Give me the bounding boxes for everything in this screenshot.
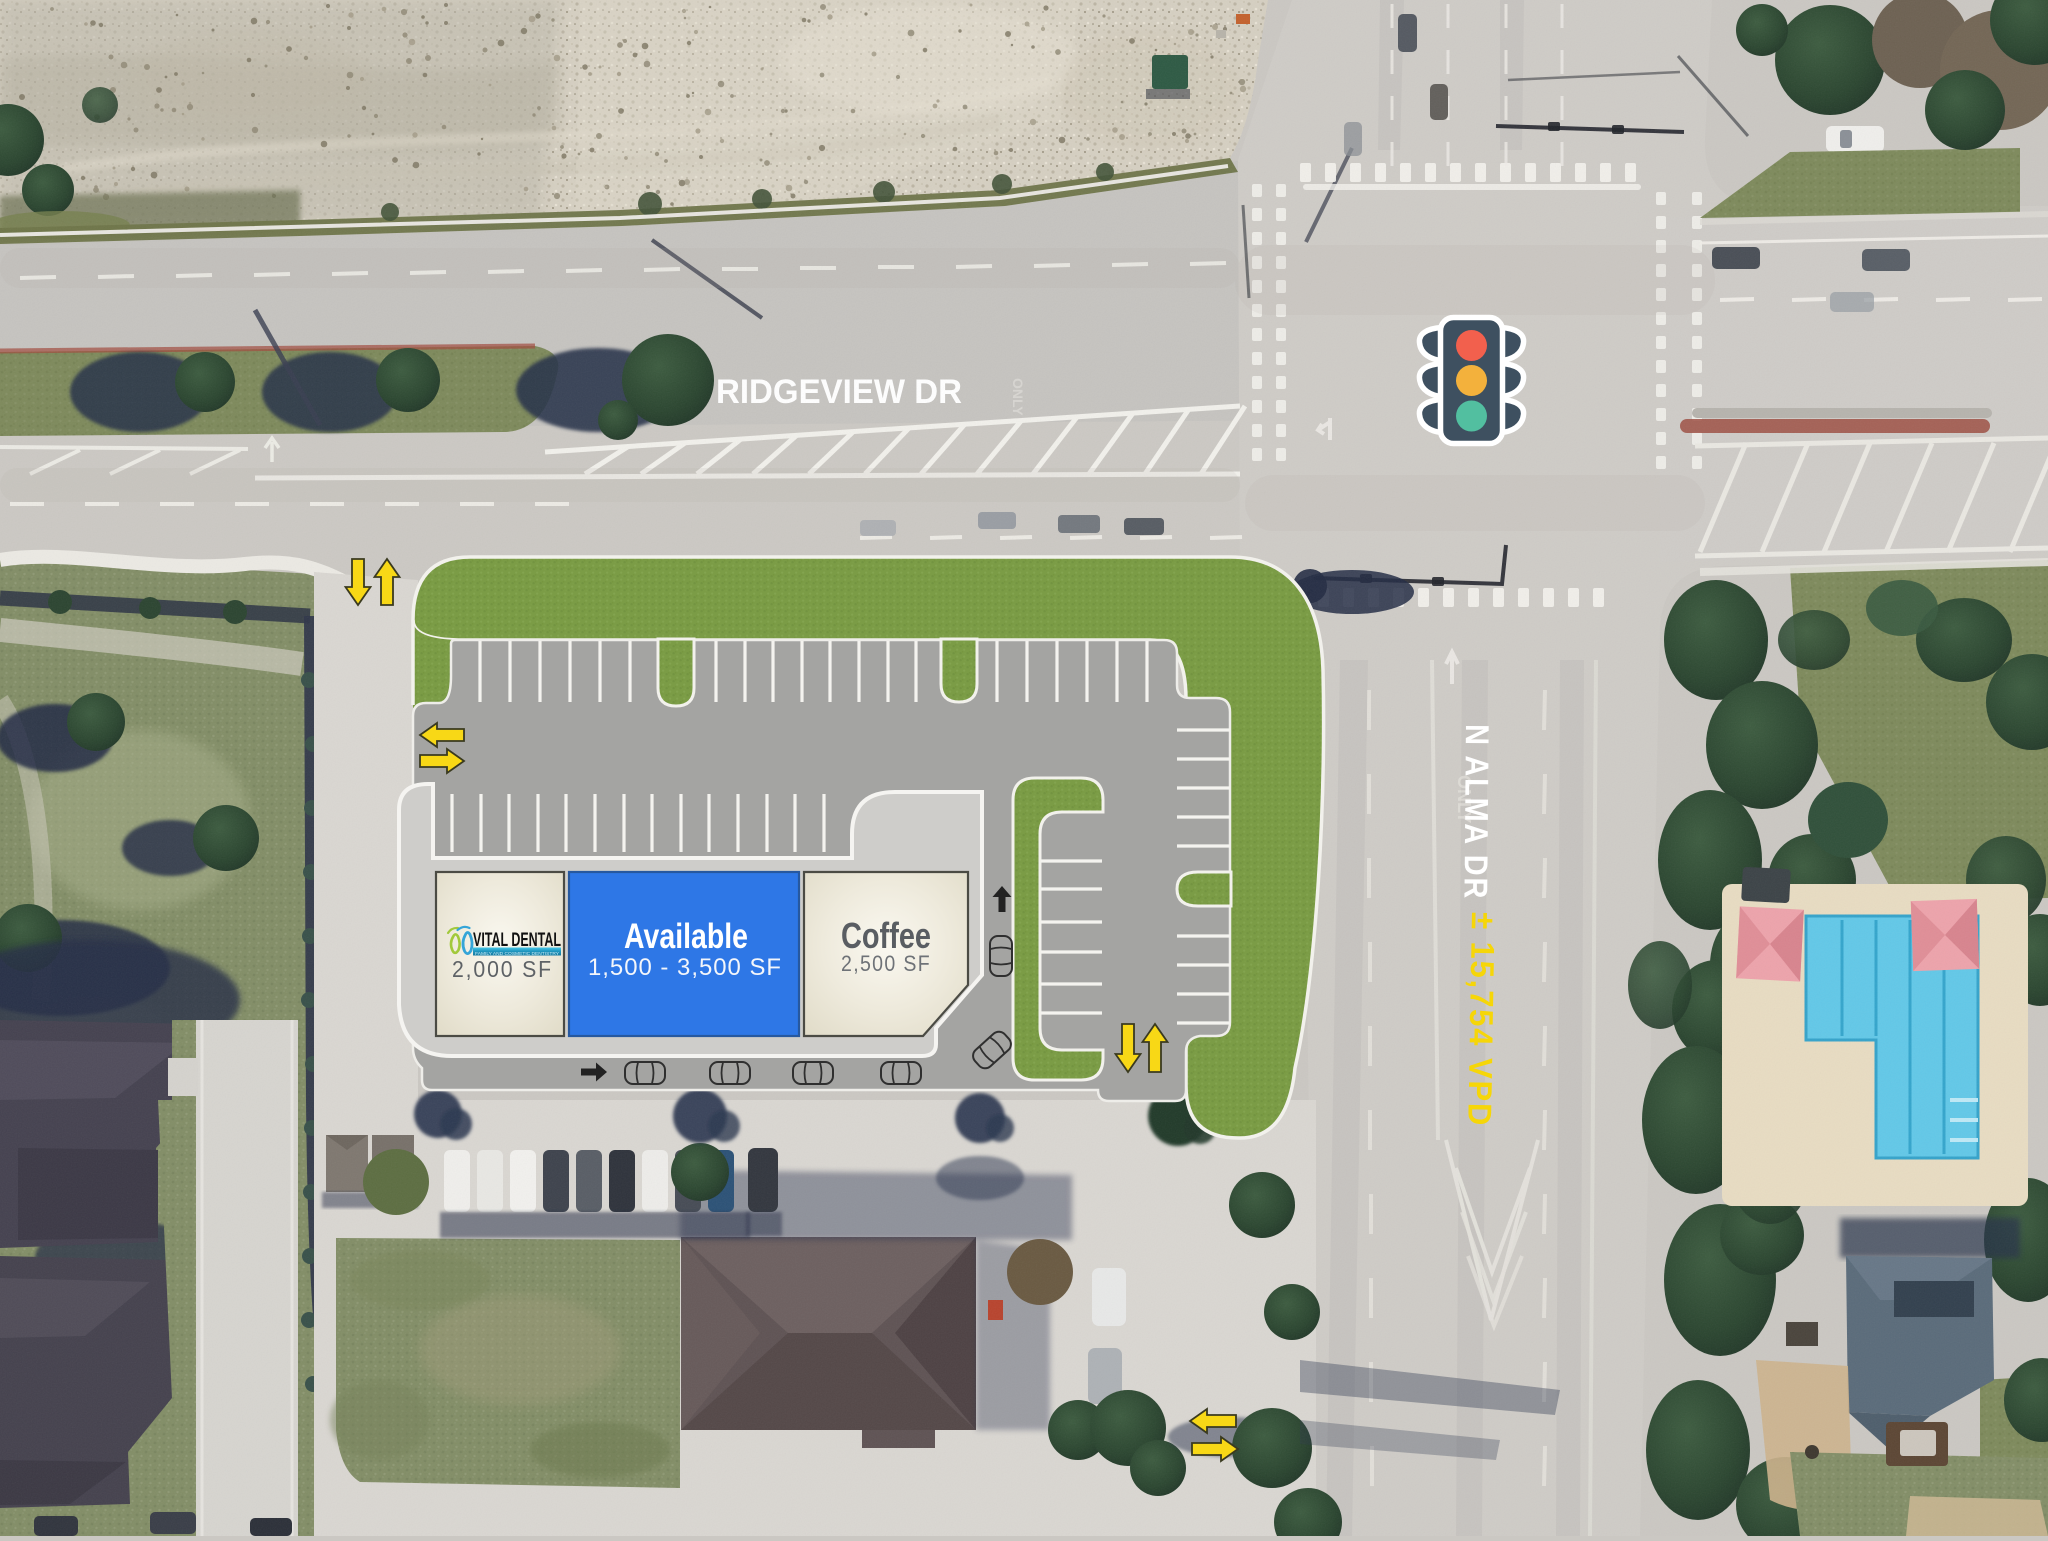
svg-text:2,500 SF: 2,500 SF [841,951,931,976]
svg-text:2,000 SF: 2,000 SF [452,956,553,982]
svg-text:Coffee: Coffee [841,915,931,956]
svg-text:± 15,754 VPD: ± 15,754 VPD [1461,912,1502,1128]
svg-text:N ALMA DR: N ALMA DR [1457,724,1496,900]
svg-text:Available: Available [624,917,748,956]
svg-text:1,500 - 3,500 SF: 1,500 - 3,500 SF [588,954,782,981]
